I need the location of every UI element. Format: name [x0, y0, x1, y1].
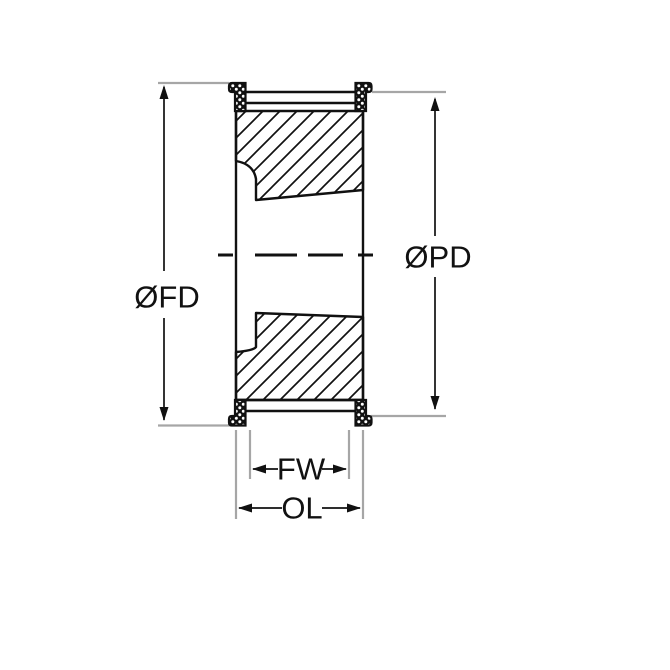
flange-top-right: [356, 83, 372, 111]
pulley-technical-drawing: ØFD ØPD FW OL: [0, 0, 670, 670]
bottom-rim-band: [235, 400, 364, 411]
top-rim-band: [235, 92, 364, 103]
pd-dimension: ØPD: [404, 97, 471, 410]
flange-bottom-right: [356, 400, 372, 426]
pd-arrow-down: [431, 396, 440, 410]
pd-label: ØPD: [404, 240, 471, 275]
fw-arrow-left: [252, 465, 266, 474]
fw-arrow-right: [333, 465, 347, 474]
upper-section-hatch: [236, 111, 363, 200]
ol-arrow-left: [238, 504, 252, 513]
fd-arrow-down: [160, 407, 169, 421]
pulley-body: [229, 83, 372, 426]
ol-arrow-right: [347, 504, 361, 513]
ol-dimension: OL: [238, 491, 361, 526]
lower-section-hatch: [236, 313, 363, 400]
fw-dimension: FW: [252, 452, 347, 487]
flange-bottom-left: [229, 400, 246, 426]
pd-arrow-up: [431, 97, 440, 111]
ol-label: OL: [281, 491, 322, 526]
fd-arrow-up: [160, 85, 169, 99]
fw-label: FW: [277, 452, 326, 487]
fd-label: ØFD: [134, 280, 199, 315]
flange-top-left: [229, 83, 246, 111]
pulley-drawing-canvas: ØFD ØPD FW OL: [0, 0, 670, 670]
fd-dimension: ØFD: [134, 85, 199, 421]
